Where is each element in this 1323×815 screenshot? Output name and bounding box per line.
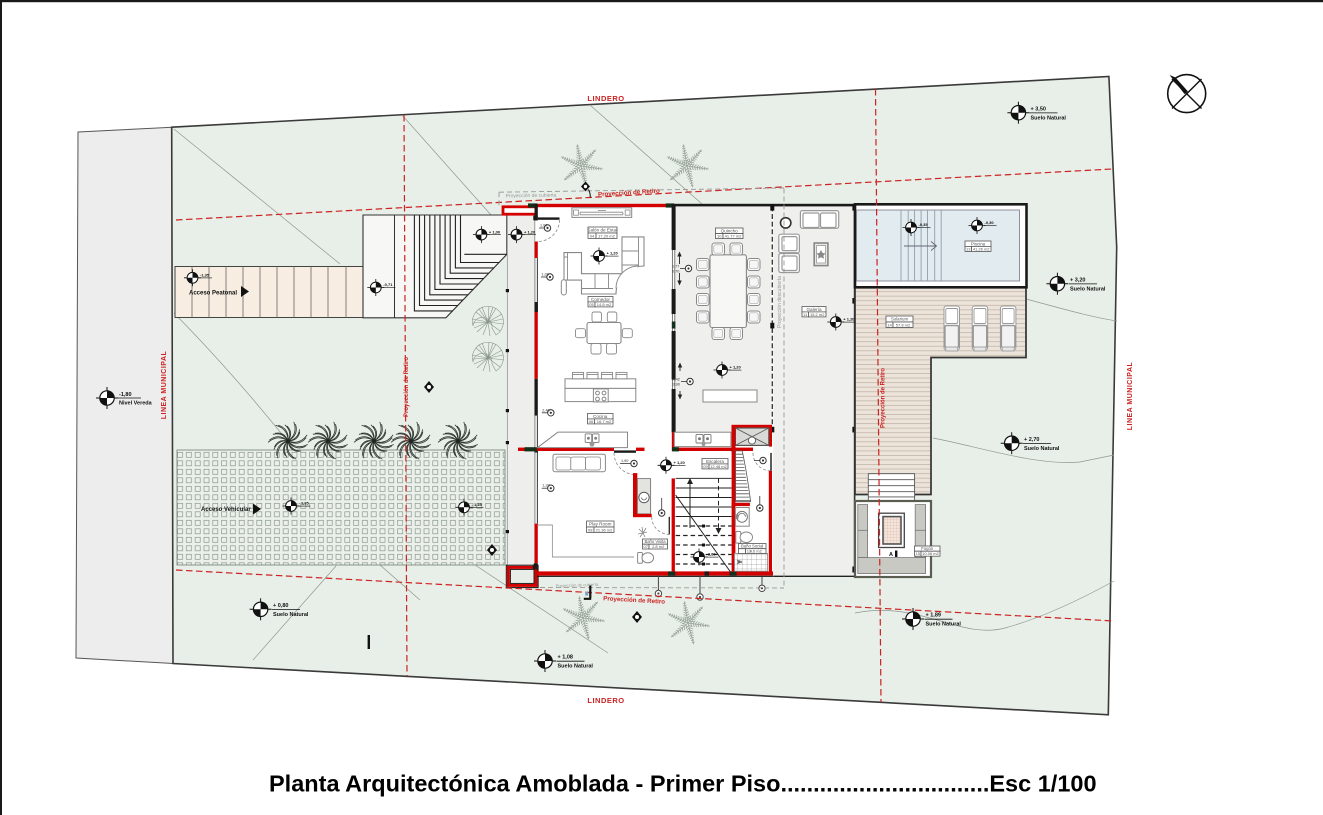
svg-text:Proyección de Retiro: Proyección de Retiro xyxy=(404,357,410,417)
svg-text:15.2 m2: 15.2 m2 xyxy=(810,312,825,317)
svg-text:41.26 m2: 41.26 m2 xyxy=(973,246,990,251)
svg-text:+ 1,20: + 1,20 xyxy=(730,365,742,370)
svg-text:09: 09 xyxy=(703,464,708,469)
svg-text:4.6 m2: 4.6 m2 xyxy=(750,549,763,554)
svg-text:Suelo Natural: Suelo Natural xyxy=(1070,286,1106,292)
svg-text:-1,35: -1,35 xyxy=(200,273,210,278)
svg-text:Proyección descubierta: Proyección descubierta xyxy=(777,276,783,328)
svg-text:Suelo Natural: Suelo Natural xyxy=(1024,446,1060,452)
svg-text:3,90: 3,90 xyxy=(673,383,680,387)
svg-text:13: 13 xyxy=(966,246,971,251)
svg-text:4,42: 4,42 xyxy=(673,378,680,382)
svg-text:-2,80: -2,80 xyxy=(707,552,717,557)
svg-text:2,40: 2,40 xyxy=(542,408,549,412)
svg-text:+ 1,20: + 1,20 xyxy=(607,251,619,256)
svg-text:-0,30: -0,30 xyxy=(985,220,995,225)
svg-text:+ 2,70: + 2,70 xyxy=(1024,437,1039,443)
svg-text:+ 3,50: + 3,50 xyxy=(1031,106,1046,112)
svg-text:Suelo Natural: Suelo Natural xyxy=(926,622,962,628)
svg-text:LINEA MUNICIPAL: LINEA MUNICIPAL xyxy=(1127,362,1134,431)
svg-text:21.36 m2: 21.36 m2 xyxy=(596,527,613,532)
svg-text:LINDERO: LINDERO xyxy=(587,696,624,705)
svg-text:1,20: 1,20 xyxy=(542,484,549,488)
svg-text:41.77 m2: 41.77 m2 xyxy=(725,234,742,239)
svg-text:57.8 m2: 57.8 m2 xyxy=(896,322,911,327)
svg-text:Proyección de Retiro: Proyección de Retiro xyxy=(881,368,887,428)
svg-text:+ 1,20: + 1,20 xyxy=(843,317,855,322)
svg-text:1,00: 1,00 xyxy=(540,224,547,228)
svg-text:10: 10 xyxy=(717,234,722,239)
svg-text:08: 08 xyxy=(588,527,593,532)
svg-text:Salón de Estar: Salón de Estar xyxy=(587,228,618,233)
svg-text:Acceso Vehicular: Acceso Vehicular xyxy=(201,507,251,513)
svg-text:17.20 m2: 17.20 m2 xyxy=(598,233,615,238)
svg-text:+ 0,80: + 0,80 xyxy=(273,603,288,609)
svg-text:+ 1,00: + 1,00 xyxy=(489,229,501,234)
svg-text:1,00: 1,00 xyxy=(542,273,549,277)
svg-text:Suelo Natural: Suelo Natural xyxy=(1031,115,1067,121)
svg-text:Suelo Natural: Suelo Natural xyxy=(558,664,594,670)
svg-text:Proyección de cubierta: Proyección de cubierta xyxy=(505,193,556,200)
svg-text:+ 1,08: + 1,08 xyxy=(558,655,573,661)
svg-text:14: 14 xyxy=(887,322,892,327)
svg-text:2.8 m2: 2.8 m2 xyxy=(652,544,665,549)
svg-text:16.7 m2: 16.7 m2 xyxy=(597,419,612,424)
svg-text:- 1,35: - 1,35 xyxy=(472,502,483,507)
svg-text:Solarium: Solarium xyxy=(891,317,909,322)
svg-text:LINEA MUNICIPAL: LINEA MUNICIPAL xyxy=(161,351,168,420)
svg-text:Planta Arquitectónica Amoblada: Planta Arquitectónica Amoblada - Primer … xyxy=(269,771,1097,797)
svg-text:07: 07 xyxy=(643,544,648,549)
svg-text:+ 1,89: + 1,89 xyxy=(926,613,941,619)
svg-text:+ 3,20: + 3,20 xyxy=(1070,277,1085,283)
svg-text:- 1,35: - 1,35 xyxy=(299,501,310,506)
svg-text:Suelo Natural: Suelo Natural xyxy=(273,612,309,618)
svg-text:06: 06 xyxy=(589,419,594,424)
svg-text:Acceso Peatonal: Acceso Peatonal xyxy=(189,291,237,297)
svg-text:05: 05 xyxy=(589,302,594,307)
svg-text:-0,71: -0,71 xyxy=(383,282,393,287)
svg-text:04: 04 xyxy=(590,233,595,238)
svg-text:14.8 m2: 14.8 m2 xyxy=(597,302,612,307)
svg-text:+ 1,20: + 1,20 xyxy=(674,460,686,465)
svg-text:Play Room: Play Room xyxy=(589,522,612,527)
svg-text:12.48 m2: 12.48 m2 xyxy=(710,464,727,469)
svg-text:A: A xyxy=(889,552,893,558)
svg-text:Nivel Vereda: Nivel Vereda xyxy=(119,401,153,407)
svg-text:10.06 m2: 10.06 m2 xyxy=(922,551,939,556)
svg-text:LINDERO: LINDERO xyxy=(587,94,624,103)
svg-text:1,77: 1,77 xyxy=(672,265,679,269)
svg-text:-0,35: -0,35 xyxy=(919,222,929,227)
svg-text:1,90: 1,90 xyxy=(621,459,628,463)
svg-text:0,70: 0,70 xyxy=(672,270,679,274)
svg-text:+ 1,20: + 1,20 xyxy=(524,229,536,234)
svg-text:15: 15 xyxy=(915,551,920,556)
svg-text:-1,80: -1,80 xyxy=(119,392,132,398)
